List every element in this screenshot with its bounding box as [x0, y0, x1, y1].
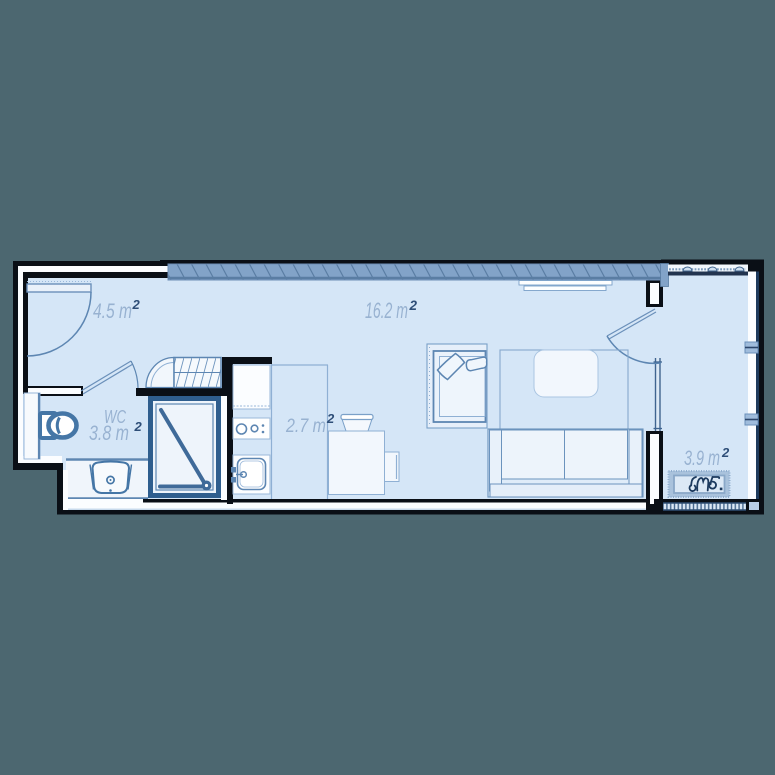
svg-text:2: 2	[409, 298, 418, 313]
svg-text:2.7 m: 2.7 m	[285, 415, 326, 437]
svg-text:2: 2	[326, 411, 335, 426]
svg-text:3.9 m: 3.9 m	[684, 447, 720, 470]
svg-text:2: 2	[132, 297, 141, 312]
svg-text:2: 2	[134, 419, 143, 434]
svg-text:3.8 m: 3.8 m	[89, 422, 129, 445]
svg-text:2: 2	[721, 445, 730, 460]
svg-text:4.5 m: 4.5 m	[93, 300, 132, 323]
svg-text:16.2 m: 16.2 m	[365, 298, 408, 323]
